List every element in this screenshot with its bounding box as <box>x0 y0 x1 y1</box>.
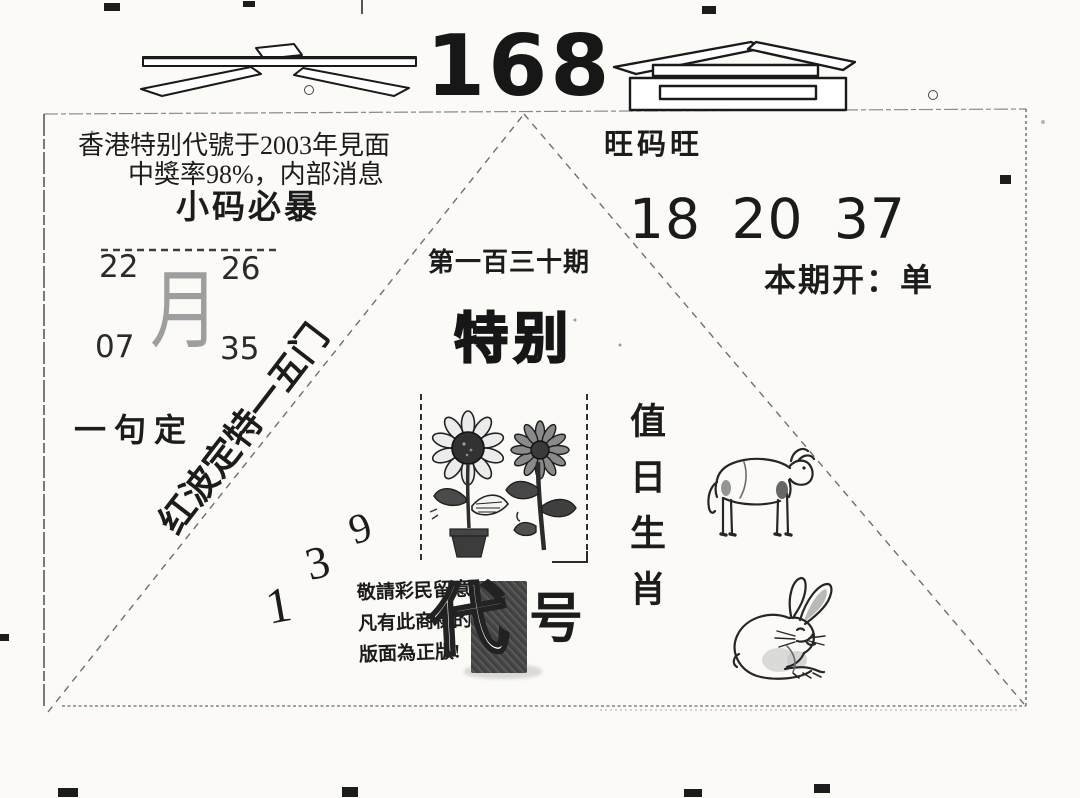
promo-line-3: 小码必暴 <box>176 192 320 225</box>
issue-number-label: 第一百三十期 <box>428 250 590 276</box>
promo-line-1: 香港特别代號于2003年見面 <box>78 133 390 159</box>
wang-ma-wang-label: 旺码旺 <box>604 131 703 160</box>
zodiac-title-vertical: 值日生肖 <box>627 402 663 652</box>
ox-icon <box>692 442 824 548</box>
potted-sunflower-icon <box>430 411 508 557</box>
draw-result-label: 本期开：单 <box>764 264 934 296</box>
one-phrase-label: 一句定 <box>74 414 194 446</box>
lottery-tip-sheet-page: 六 168 會 香港特别代號于2003年見面 中獎率98%，内部消息 小码必暴 … <box>0 0 1080 798</box>
corner-number-bottom-left: 07 <box>95 332 134 363</box>
corner-number-top-right: 26 <box>221 254 260 285</box>
code-character-hao: 号 <box>529 592 583 646</box>
box-corner-mark <box>552 551 588 563</box>
masthead-number: 168 <box>426 24 612 109</box>
faded-month-character: 月 <box>150 268 219 354</box>
code-character-dai: 代 <box>428 580 510 662</box>
sunflower-box <box>420 394 588 560</box>
corner-number-bottom-right: 35 <box>220 334 259 365</box>
lucky-numbers: 18 20 37 <box>629 192 906 247</box>
cut-sunflower-icon <box>506 421 576 550</box>
masthead-liu-glyph <box>138 38 423 102</box>
corner-number-top-left: 22 <box>99 252 138 283</box>
rabbit-icon <box>727 574 855 692</box>
masthead-hui-glyph <box>606 40 856 112</box>
promo-line-2: 中獎率98%，内部消息 <box>128 162 384 188</box>
sunflower-pair-illustration <box>422 394 586 560</box>
special-title: 特别 <box>454 312 574 366</box>
